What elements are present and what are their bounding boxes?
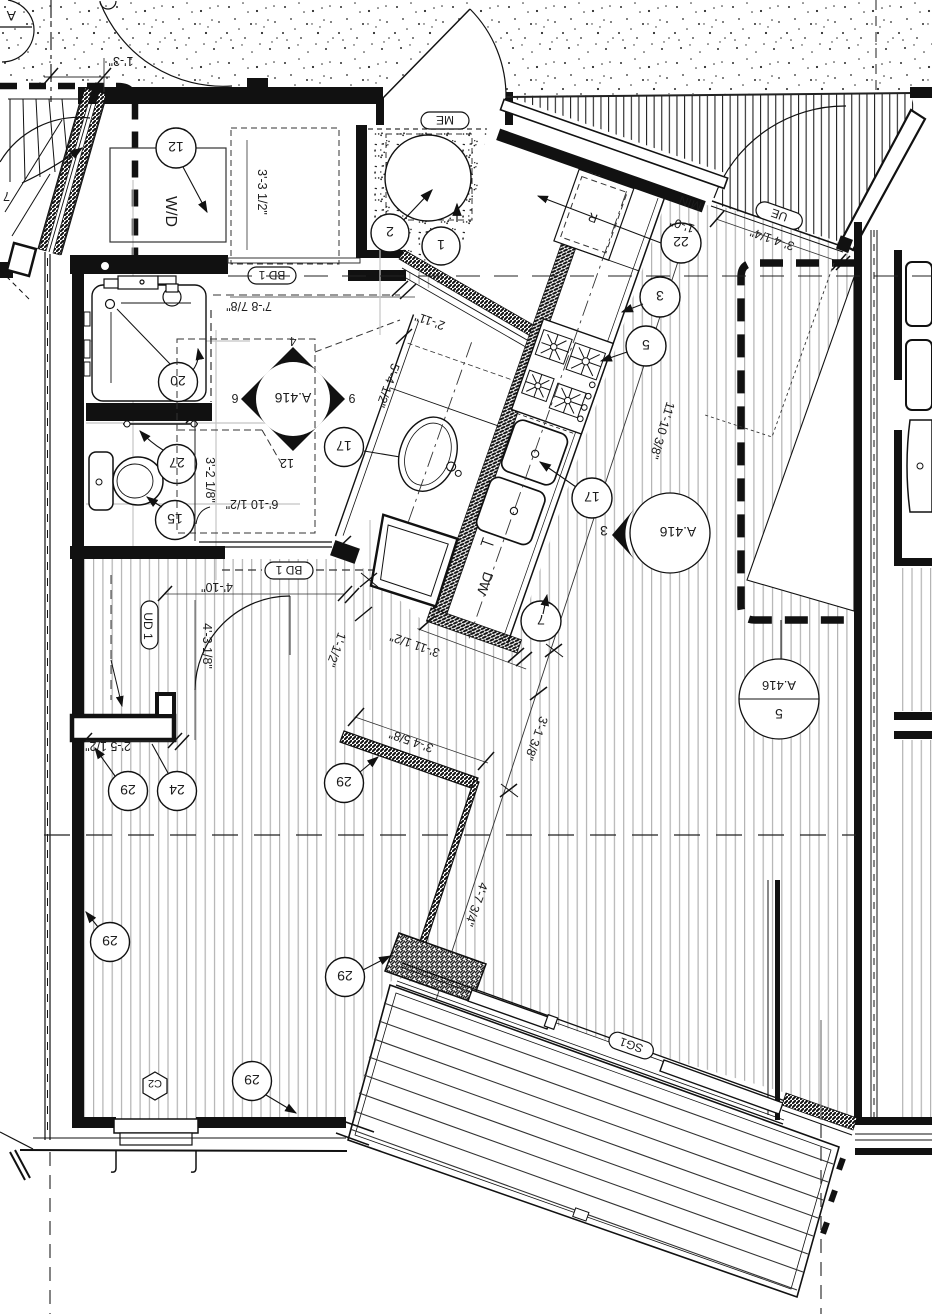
svg-text:12: 12 (168, 139, 184, 155)
svg-text:5: 5 (642, 337, 650, 353)
svg-text:6'-10 1/2": 6'-10 1/2" (226, 497, 279, 511)
svg-text:7: 7 (3, 189, 10, 203)
svg-text:A.416: A.416 (274, 390, 311, 406)
svg-text:15: 15 (167, 511, 183, 527)
svg-text:5: 5 (775, 706, 783, 722)
svg-text:29: 29 (120, 782, 136, 798)
svg-text:29: 29 (102, 933, 118, 949)
svg-text:3: 3 (656, 288, 664, 304)
svg-text:7'-8 7/8": 7'-8 7/8" (226, 299, 272, 313)
svg-text:2'-5 1/2": 2'-5 1/2" (85, 739, 131, 753)
svg-text:3'-3 1/2": 3'-3 1/2" (255, 169, 269, 215)
svg-text:17: 17 (336, 438, 352, 454)
svg-text:4: 4 (289, 334, 296, 348)
svg-text:BD 1: BD 1 (258, 268, 285, 282)
svg-text:29: 29 (244, 1072, 260, 1088)
svg-text:A.416: A.416 (762, 678, 796, 693)
svg-text:A.416: A.416 (659, 524, 696, 540)
svg-text:1: 1 (437, 237, 445, 253)
svg-text:3: 3 (600, 523, 608, 539)
svg-text:17: 17 (584, 489, 600, 505)
svg-text:29: 29 (336, 774, 352, 790)
svg-text:ME: ME (436, 113, 454, 127)
svg-text:6: 6 (231, 391, 238, 405)
svg-text:7: 7 (537, 612, 545, 628)
svg-text:4'-3 1/8": 4'-3 1/8" (200, 623, 214, 669)
svg-text:3'-2 1/8": 3'-2 1/8" (203, 457, 217, 503)
svg-text:BD 1: BD 1 (275, 563, 302, 577)
svg-text:4'-10": 4'-10" (201, 580, 233, 594)
svg-text:2: 2 (386, 224, 394, 240)
svg-text:C2: C2 (148, 1077, 162, 1089)
svg-text:29: 29 (337, 968, 353, 984)
svg-text:9: 9 (348, 391, 355, 405)
svg-text:W/D: W/D (162, 196, 179, 227)
svg-text:A: A (6, 8, 16, 24)
svg-text:1'-3": 1'-3" (109, 54, 134, 68)
svg-text:22: 22 (673, 234, 689, 250)
svg-text:12: 12 (280, 456, 294, 470)
svg-text:UD 1: UD 1 (141, 612, 155, 640)
svg-text:20: 20 (170, 373, 186, 389)
svg-text:24: 24 (169, 782, 185, 798)
